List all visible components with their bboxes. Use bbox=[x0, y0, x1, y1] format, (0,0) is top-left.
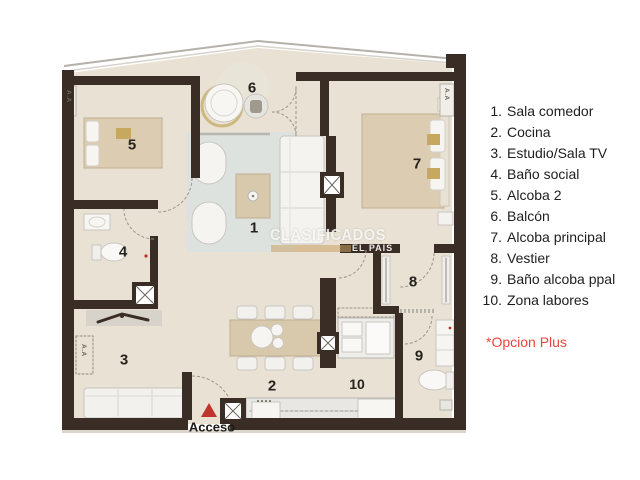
legend: 1. Sala comedor 2. Cocina 3. Estudio/Sal… bbox=[476, 101, 640, 350]
legend-item-number: 5. bbox=[476, 185, 502, 206]
legend-item-label: Cocina bbox=[507, 122, 551, 143]
legend-item-label: Balcón bbox=[507, 206, 550, 227]
legend-item: 4. Baño social bbox=[476, 164, 640, 185]
legend-item-number: 10. bbox=[476, 290, 502, 311]
legend-item: 9. Baño alcoba ppal bbox=[476, 269, 640, 290]
room-label-6: 6 bbox=[248, 80, 256, 97]
legend-item: 10. Zona labores bbox=[476, 290, 640, 311]
room-label-8: 8 bbox=[409, 274, 417, 291]
room-label-7: 7 bbox=[413, 156, 421, 173]
room-label-9: 9 bbox=[415, 348, 423, 365]
legend-item-label: Baño social bbox=[507, 164, 579, 185]
access-arrow-icon bbox=[201, 403, 217, 417]
legend-item-number: 8. bbox=[476, 248, 502, 269]
legend-item-label: Zona labores bbox=[507, 290, 589, 311]
access-label: Acceso bbox=[189, 420, 235, 435]
legend-item: 1. Sala comedor bbox=[476, 101, 640, 122]
ac-label-study: A.A bbox=[80, 344, 87, 357]
option-note: *Opcion Plus bbox=[476, 334, 640, 350]
legend-item-number: 2. bbox=[476, 122, 502, 143]
legend-item-number: 4. bbox=[476, 164, 502, 185]
legend-item: 3. Estudio/Sala TV bbox=[476, 143, 640, 164]
legend-item-number: 7. bbox=[476, 227, 502, 248]
legend-item: 6. Balcón bbox=[476, 206, 640, 227]
dining-set bbox=[230, 306, 322, 370]
legend-item-number: 6. bbox=[476, 206, 502, 227]
legend-item-label: Alcoba 2 bbox=[507, 185, 561, 206]
room-label-1: 1 bbox=[250, 220, 258, 237]
legend-item-label: Baño alcoba ppal bbox=[507, 269, 615, 290]
legend-item-label: Estudio/Sala TV bbox=[507, 143, 607, 164]
legend-item: 8. Vestier bbox=[476, 248, 640, 269]
legend-item: 7. Alcoba principal bbox=[476, 227, 640, 248]
legend-item-number: 3. bbox=[476, 143, 502, 164]
room-label-10: 10 bbox=[349, 376, 365, 392]
legend-item-label: Sala comedor bbox=[507, 101, 593, 122]
room-label-2: 2 bbox=[268, 378, 276, 395]
watermark-subtext: EL PAIS bbox=[352, 243, 393, 253]
room-label-4: 4 bbox=[119, 244, 127, 261]
room-label-3: 3 bbox=[120, 352, 128, 369]
screenshot-canvas: CLASIFICADOS EL PAIS 1 2 3 4 5 6 7 8 9 1… bbox=[0, 0, 640, 480]
watermark-underline bbox=[271, 245, 351, 252]
legend-item-label: Vestier bbox=[507, 248, 550, 269]
room-label-5: 5 bbox=[128, 137, 136, 154]
legend-item-number: 9. bbox=[476, 269, 502, 290]
legend-item: 5. Alcoba 2 bbox=[476, 185, 640, 206]
ac-label-bedroom2: A.A bbox=[65, 90, 72, 103]
ac-label-master: A.A bbox=[443, 88, 450, 101]
legend-item: 2. Cocina bbox=[476, 122, 640, 143]
master-bed bbox=[362, 98, 453, 225]
legend-item-label: Alcoba principal bbox=[507, 227, 606, 248]
legend-item-number: 1. bbox=[476, 101, 502, 122]
bedroom2-bed bbox=[84, 118, 162, 168]
